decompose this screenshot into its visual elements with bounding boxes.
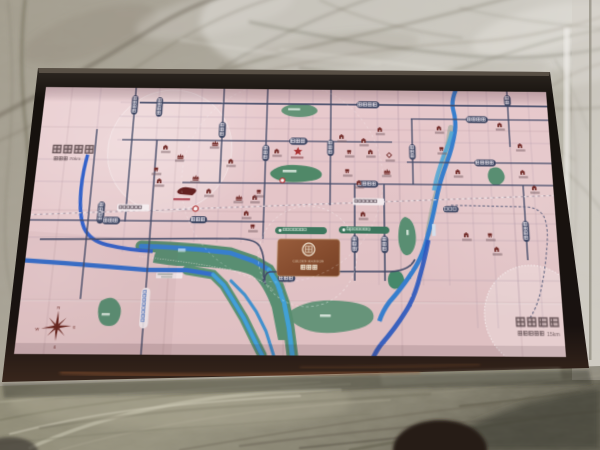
svg-text:15km: 15km [547, 331, 561, 338]
svg-text:GOLDEN MANSION: GOLDEN MANSION [293, 260, 324, 264]
svg-text:70km: 70km [69, 156, 81, 161]
